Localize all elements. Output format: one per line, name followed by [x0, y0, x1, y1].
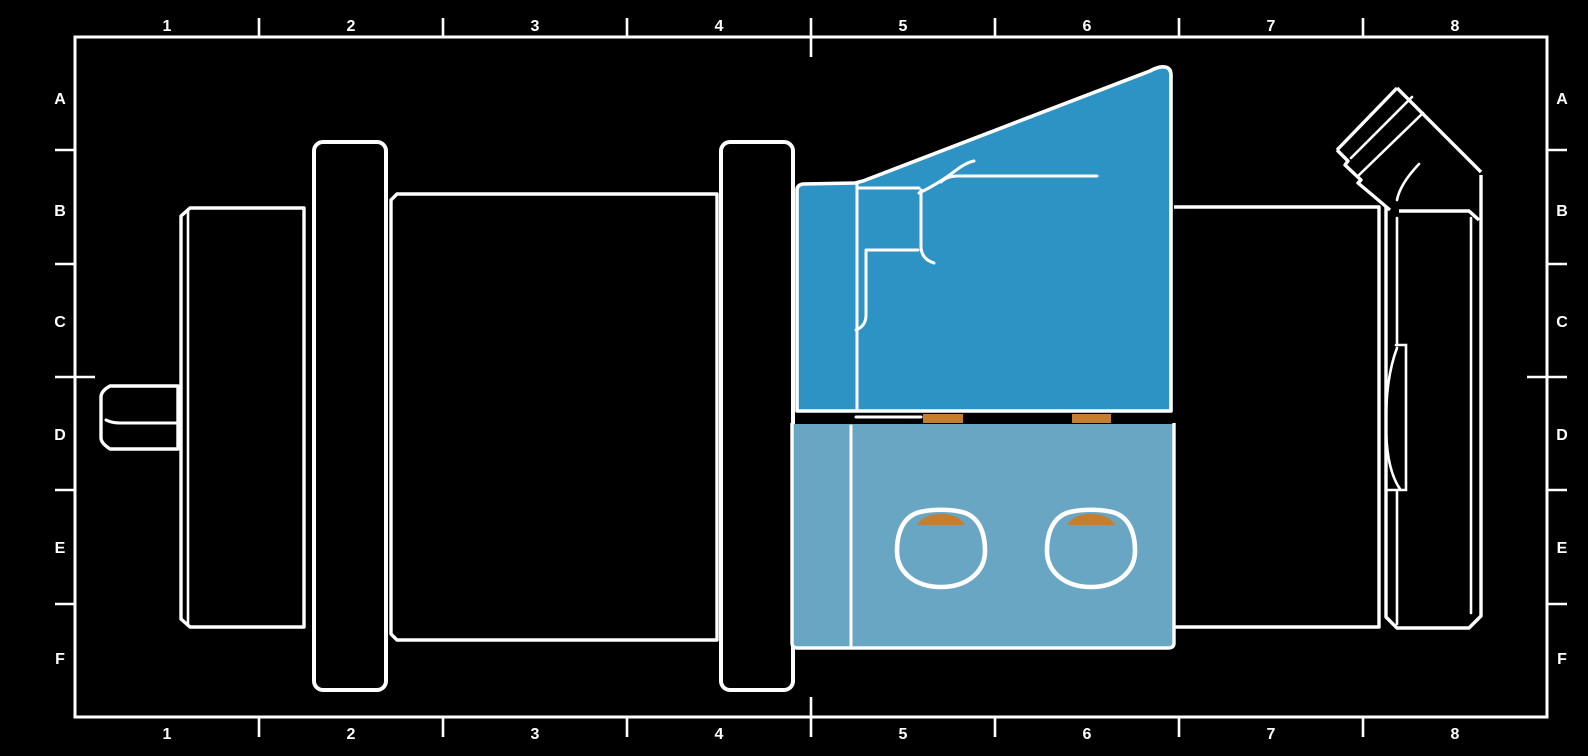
- part-front-mounting-flange[interactable]: [721, 142, 793, 690]
- zone-label: 1: [163, 18, 172, 35]
- end-cap-slot-curve: [1386, 348, 1400, 489]
- part-rear-housing[interactable]: [181, 208, 304, 627]
- zone-label: 6: [1083, 18, 1092, 35]
- zone-label: B: [54, 203, 66, 220]
- end-cap-top-edge: [1399, 211, 1479, 220]
- drive-shaft-outline[interactable]: [101, 386, 178, 449]
- zone-label: F: [55, 651, 65, 668]
- zone-label: 8: [1451, 18, 1460, 35]
- machine-assembly: [101, 67, 1481, 690]
- elbow-inner-edge: [1337, 150, 1390, 210]
- part-lower-manifold-block[interactable]: [792, 423, 1174, 648]
- seal-strips: [856, 414, 1111, 423]
- zone-label: A: [54, 91, 66, 108]
- front-flange-outline[interactable]: [721, 142, 793, 690]
- rear-flange-outline[interactable]: [314, 142, 386, 690]
- zone-label: 5: [899, 18, 908, 35]
- grid-ruler-right: A B C D E F: [1556, 91, 1568, 668]
- zone-label: 4: [715, 18, 724, 35]
- zone-label: 8: [1451, 726, 1460, 743]
- zone-label: 4: [715, 726, 724, 743]
- zone-label: D: [1556, 427, 1568, 444]
- seal-strip-right[interactable]: [1072, 414, 1111, 423]
- zone-label: B: [1556, 203, 1568, 220]
- zone-label: A: [1556, 91, 1568, 108]
- grid-ruler-left: A B C D E F: [54, 91, 66, 668]
- zone-label: E: [1557, 540, 1568, 557]
- zone-label: F: [1557, 651, 1567, 668]
- part-upper-valve-block[interactable]: [797, 67, 1171, 411]
- upper-valve-block-body[interactable]: [797, 67, 1171, 411]
- zone-label: C: [54, 314, 66, 331]
- zone-label: 3: [531, 18, 540, 35]
- center-housing-outline[interactable]: [391, 194, 717, 640]
- zone-label: 7: [1267, 726, 1276, 743]
- zone-label: 2: [347, 18, 356, 35]
- elbow-nut-band: [1359, 113, 1423, 175]
- drawing-canvas: 1 2 3 4 5 6 7 8 1 2 3 4 5 6 7 8 A B C D …: [0, 0, 1588, 756]
- part-end-cap[interactable]: [1386, 175, 1481, 628]
- zone-label: 5: [899, 726, 908, 743]
- main-housing-outline[interactable]: [1174, 207, 1379, 627]
- part-elbow-fitting[interactable]: [1337, 88, 1481, 210]
- zone-label: 2: [347, 726, 356, 743]
- part-center-housing[interactable]: [391, 194, 717, 640]
- seal-strip-left[interactable]: [923, 414, 963, 423]
- zone-label: 7: [1267, 18, 1276, 35]
- zone-label: C: [1556, 314, 1568, 331]
- rear-housing-outline[interactable]: [181, 208, 304, 627]
- end-cap-outline[interactable]: [1386, 175, 1481, 628]
- part-rear-mounting-flange[interactable]: [314, 142, 386, 690]
- zone-label: 6: [1083, 726, 1092, 743]
- elbow-bend-curve: [1397, 164, 1419, 200]
- zone-label: D: [54, 427, 66, 444]
- zone-label: 3: [531, 726, 540, 743]
- part-drive-shaft[interactable]: [101, 386, 178, 449]
- zone-label: E: [55, 540, 66, 557]
- part-main-housing[interactable]: [1174, 207, 1379, 627]
- zone-label: 1: [163, 726, 172, 743]
